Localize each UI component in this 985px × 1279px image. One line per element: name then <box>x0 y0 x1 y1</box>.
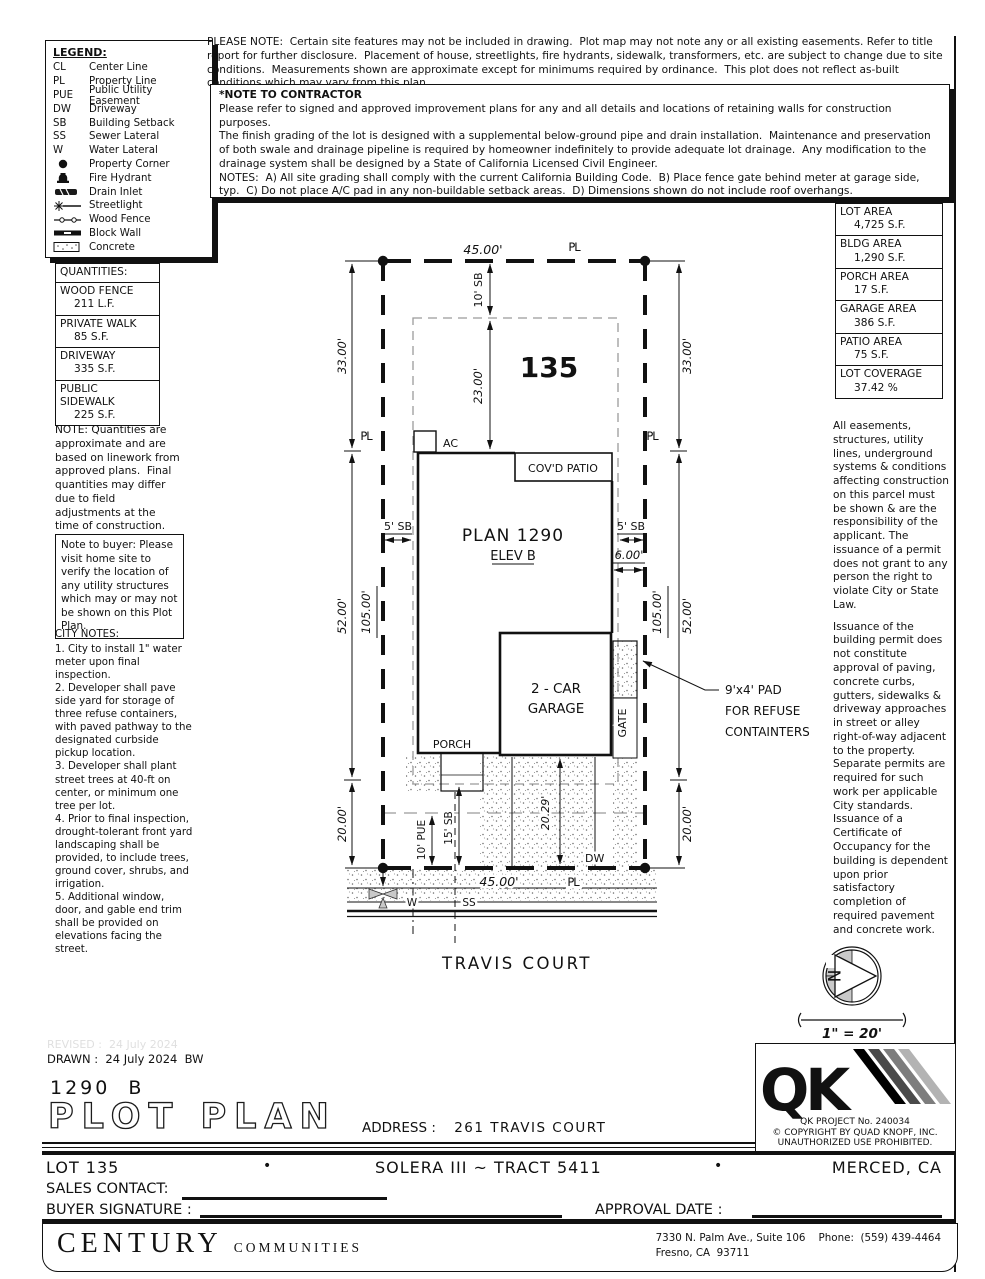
qk-copyright: © COPYRIGHT BY QUAD KNOPF, INC. <box>772 1128 937 1138</box>
legend-item-block-wall: Block Wall <box>53 227 205 241</box>
dim-sb-10: 10' SB <box>472 272 485 307</box>
century-communities: COMMUNITIES <box>234 1240 362 1255</box>
bullet-separator: • <box>714 1158 722 1174</box>
table-row: BLDG AREA1,290 S.F. <box>836 235 942 267</box>
legend-item-concrete: Concrete <box>53 240 205 254</box>
refuse-callout-leader <box>643 661 719 690</box>
dim-right-52: 52.00' <box>680 598 694 634</box>
fire-hydrant-icon <box>53 172 89 184</box>
garage-label-1: 2 - CAR <box>531 681 581 697</box>
table-row: LOT COVERAGE37.42 % <box>836 365 942 397</box>
covered-patio-label: COV'D PATIO <box>528 462 598 475</box>
pl-label-left: PL <box>360 429 373 443</box>
buyer-signature-line <box>200 1215 562 1218</box>
refuse-callout-1: 9'x4' PAD <box>725 683 782 697</box>
gate-label: GATE <box>616 709 629 738</box>
address-value: 261 TRAVIS COURT <box>454 1120 606 1136</box>
quantities-table: QUANTITIES: WOOD FENCE211 L.F. PRIVATE W… <box>55 263 160 426</box>
dim-right-20: 20.00' <box>680 806 694 842</box>
table-row: PRIVATE WALK85 S.F. <box>56 315 159 347</box>
sales-contact-line <box>182 1197 387 1200</box>
city-note-5: 5. Additional window, door, and gable en… <box>55 891 193 956</box>
builder-address: 7330 N. Palm Ave., Suite 106 Phone: (559… <box>656 1231 941 1262</box>
city-notes-title: CITY NOTES: <box>55 628 193 641</box>
legend-item-streetlight: Streetlight <box>53 199 205 213</box>
table-row: PUBLIC SIDEWALK225 S.F. <box>56 380 159 426</box>
water-lateral-label: W <box>407 897 418 909</box>
dim-left-33: 33.00' <box>335 338 349 374</box>
lot-number: 135 <box>520 351 578 384</box>
dim-sb-right: 5' SB <box>617 520 645 533</box>
revised-note: REVISED : 24 July 2024 <box>47 1038 178 1051</box>
city-note-3: 3. Developer shall plant street trees at… <box>55 760 193 812</box>
pl-label-top: PL <box>568 240 581 254</box>
dim-23: 23.00' <box>471 368 485 404</box>
water-symbol: W <box>53 145 89 156</box>
buyer-note-box: Note to buyer: Please visit home site to… <box>55 534 184 639</box>
legend-box: LEGEND: CLCenter Line PLProperty Line PU… <box>45 40 213 258</box>
contractor-note-p1: Please refer to signed and approved impr… <box>219 103 941 131</box>
sheet-title: PLOT PLAN <box>48 1097 337 1137</box>
qk-project-number: QK PROJECT No. 240034 <box>800 1117 910 1127</box>
legend-item-setback: SBBuilding Setback <box>53 116 205 130</box>
elevation-label: ELEV B <box>490 549 536 564</box>
quantities-title: QUANTITIES: <box>56 264 159 282</box>
plot-drawing: 45.00' PL 33.00' 52.00' 20.00' 105.00' 3… <box>330 233 830 1000</box>
dim-pue: 10' PUE <box>416 820 428 860</box>
dim-left-105: 105.00' <box>359 590 373 633</box>
dim-20-29: 20.29' <box>539 796 552 831</box>
sewer-symbol: SS <box>53 131 89 142</box>
areas-table: LOT AREA4,725 S.F. BLDG AREA1,290 S.F. P… <box>835 203 943 399</box>
legend-item-sewer: SSSewer Lateral <box>53 130 205 144</box>
front-dim-bottom: 45.00' <box>479 874 518 889</box>
permit-note: Issuance of the building permit does not… <box>833 621 951 938</box>
legend-item-pue: PUEPublic Utility Easement <box>53 89 205 103</box>
legend-item-water: WWater Lateral <box>53 144 205 158</box>
drain-inlet-icon <box>53 186 89 198</box>
builder-strip: CENTURY COMMUNITIES 7330 N. Palm Ave., S… <box>42 1223 958 1272</box>
table-row: DRIVEWAY335 S.F. <box>56 347 159 379</box>
title-rule-2 <box>42 1147 755 1149</box>
legend-item-center-line: CLCenter Line <box>53 61 205 75</box>
plan-code: 1290 B <box>50 1077 144 1099</box>
address-row: ADDRESS : 261 TRAVIS COURT <box>362 1120 606 1136</box>
qk-logo-box: QK QK PROJECT No. 240034 © COPYRIGHT BY … <box>755 1043 956 1152</box>
builder-address-line2: Fresno, CA 93711 <box>656 1246 941 1261</box>
refuse-callout-3: CONTAINTERS <box>725 725 810 739</box>
contractor-note-p3: NOTES: A) All site grading shall comply … <box>219 172 941 200</box>
qk-logo: QK QK PROJECT No. 240034 © COPYRIGHT BY … <box>756 1044 953 1148</box>
dim-sb-15: 15' SB <box>443 811 455 844</box>
legend-title: LEGEND: <box>53 46 205 59</box>
contractor-note-p2: The finish grading of the lot is designe… <box>219 130 941 171</box>
city-notes: CITY NOTES: 1. City to install 1" water … <box>55 628 193 956</box>
driveway-symbol: DW <box>53 104 89 115</box>
refuse-callout-2: FOR REFUSE <box>725 704 800 718</box>
dim-sb-left: 5' SB <box>384 520 412 533</box>
table-row: PORCH AREA17 S.F. <box>836 268 942 300</box>
legend-item-fire-hydrant: Fire Hydrant <box>53 171 205 185</box>
buyer-signature-label: BUYER SIGNATURE : <box>46 1202 192 1218</box>
block-wall-icon <box>53 227 89 239</box>
tract-label: SOLERA III ~ TRACT 5411 <box>375 1158 602 1177</box>
address-label: ADDRESS : <box>362 1120 436 1136</box>
dim-6: 6.00' <box>615 548 644 562</box>
title-rule-1 <box>42 1142 755 1144</box>
scale-label: 1" = 20' <box>822 1026 882 1040</box>
bullet-separator: • <box>263 1158 271 1174</box>
drawn-note: DRAWN : 24 July 2024 BW <box>47 1052 204 1066</box>
center-line-symbol: CL <box>53 62 89 73</box>
ac-unit <box>414 431 436 452</box>
city-label: MERCED, CA <box>810 1158 942 1177</box>
builder-address-line1: 7330 N. Palm Ave., Suite 106 Phone: (559… <box>656 1231 941 1246</box>
property-corner-icon <box>53 158 89 170</box>
easements-note: All easements, structures, utility lines… <box>833 420 951 613</box>
approval-date-line <box>752 1215 942 1218</box>
north-arrow-scale: N 1" = 20' <box>787 928 917 1040</box>
city-note-1: 1. City to install 1" water meter upon f… <box>55 643 193 682</box>
approval-date-label: APPROVAL DATE : <box>595 1202 722 1218</box>
table-row: WOOD FENCE211 L.F. <box>56 282 159 314</box>
concrete-icon <box>53 241 89 253</box>
contractor-note-title: *NOTE TO CONTRACTOR <box>219 89 941 103</box>
ac-label: AC <box>443 437 458 450</box>
please-note-text: PLEASE NOTE: Certain site features may n… <box>207 36 953 91</box>
legend-item-drain-inlet: Drain Inlet <box>53 185 205 199</box>
dim-left-20: 20.00' <box>335 806 349 842</box>
sales-contact-label: SALES CONTACT: <box>46 1181 169 1197</box>
setback-symbol: SB <box>53 118 89 129</box>
pue-symbol: PUE <box>53 90 89 101</box>
wood-fence-icon <box>53 214 89 226</box>
qk-mark: QK <box>760 1056 852 1124</box>
quantities-note: NOTE: Quantities are approximate and are… <box>55 424 182 534</box>
qk-unauthorized: UNAUTHORIZED USE PROHIBITED. <box>778 1138 933 1148</box>
right-notes: All easements, structures, utility lines… <box>833 420 951 937</box>
table-row: LOT AREA4,725 S.F. <box>836 204 942 235</box>
century-logo: CENTURY COMMUNITIES <box>57 1228 362 1260</box>
pl-label-bottom: PL <box>567 875 580 889</box>
porch-label: PORCH <box>433 738 471 751</box>
pl-label-right: PL <box>646 429 659 443</box>
front-dim-top: 45.00' <box>463 242 502 257</box>
lot-label: LOT 135 <box>46 1158 119 1177</box>
contractor-note-box: *NOTE TO CONTRACTOR Please refer to sign… <box>210 84 950 198</box>
city-note-4: 4. Prior to final inspection, drought-to… <box>55 813 193 891</box>
legend-item-property-corner: Property Corner <box>53 158 205 172</box>
city-note-2: 2. Developer shall pave side yard for st… <box>55 682 193 760</box>
century-name: CENTURY <box>57 1228 223 1259</box>
north-letter: N <box>823 970 843 983</box>
plot-plan-sheet: LEGEND: CLCenter Line PLProperty Line PU… <box>0 0 985 1279</box>
garage-label-2: GARAGE <box>528 701 585 717</box>
streetlight-icon <box>53 200 89 212</box>
dim-right-105: 105.00' <box>650 590 664 633</box>
table-row: PATIO AREA75 S.F. <box>836 333 942 365</box>
north-arrow-icon: N <box>823 947 881 1005</box>
dw-label: DW <box>585 852 604 865</box>
table-row: GARAGE AREA386 S.F. <box>836 300 942 332</box>
lot-row-top-bar <box>42 1151 956 1155</box>
sewer-lateral-label: SS <box>462 897 476 909</box>
legend-item-wood-fence: Wood Fence <box>53 213 205 227</box>
street-name: TRAVIS COURT <box>441 954 592 973</box>
dim-left-52: 52.00' <box>335 598 349 634</box>
plan-name: PLAN 1290 <box>462 526 564 546</box>
dim-right-33: 33.00' <box>680 338 694 374</box>
property-line-symbol: PL <box>53 76 89 87</box>
scale-bar <box>799 1013 906 1027</box>
